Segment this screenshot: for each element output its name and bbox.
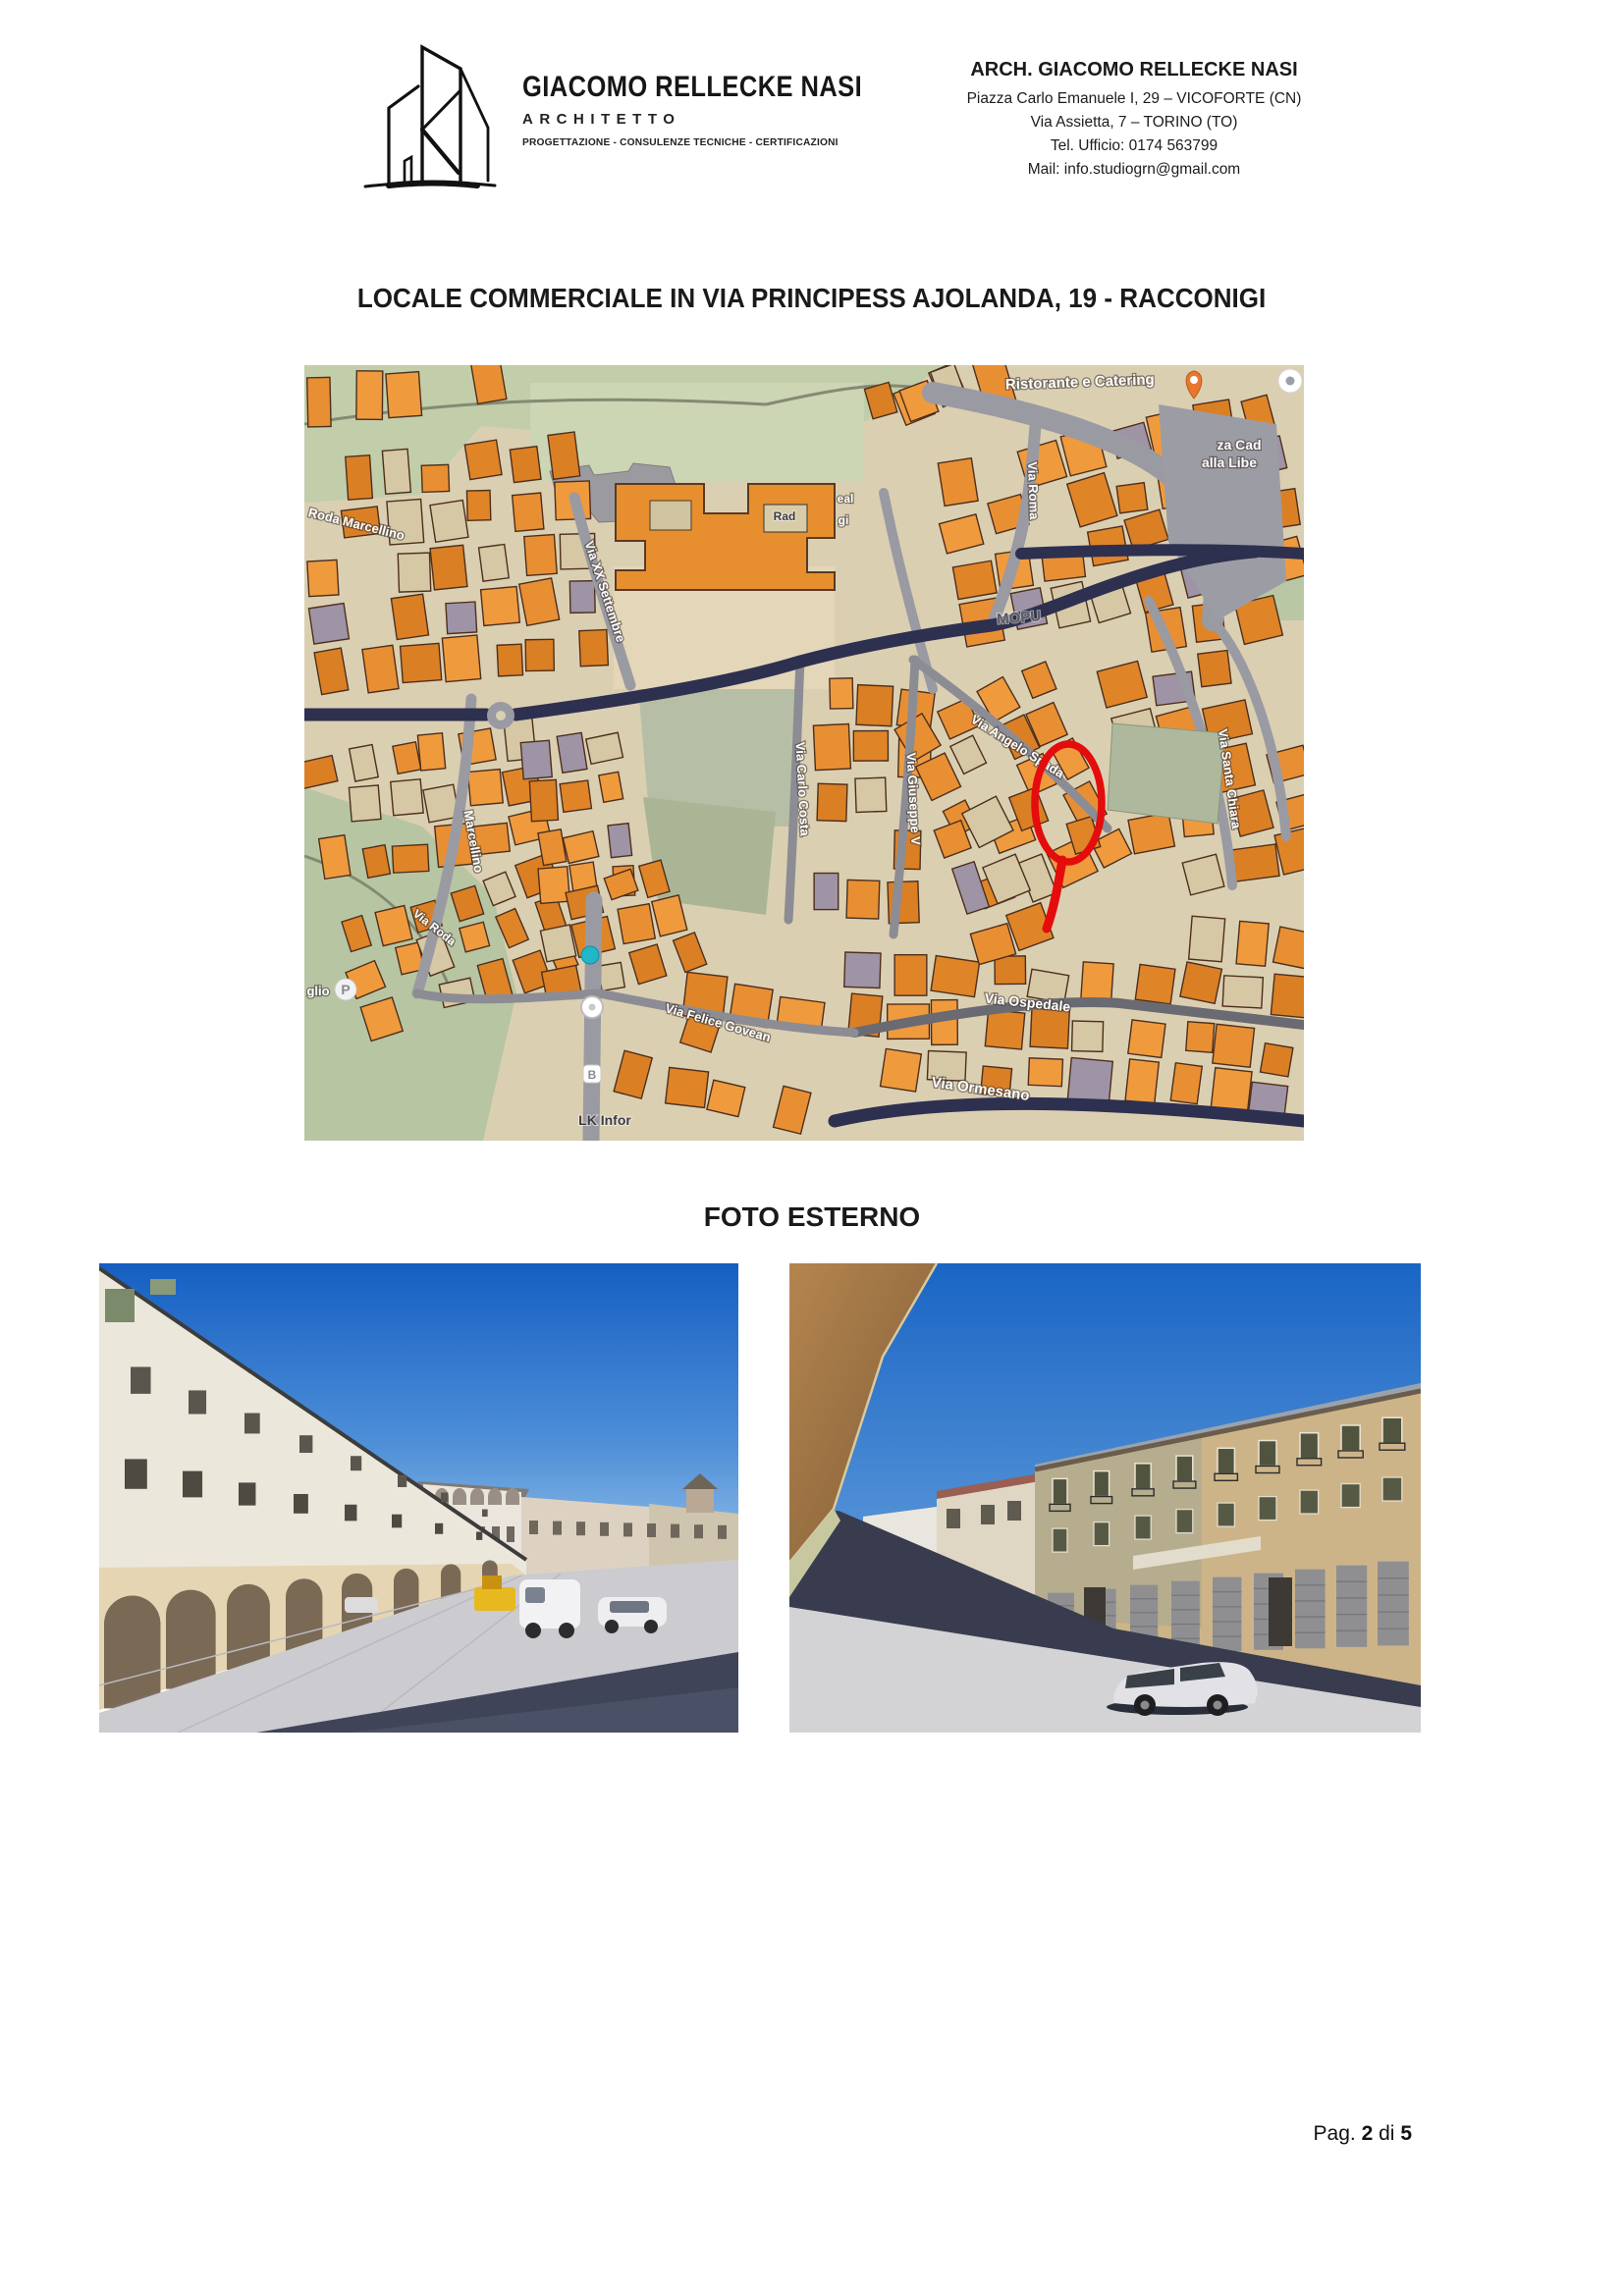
map-building-block: [881, 1048, 922, 1092]
map-building-block: [814, 873, 839, 909]
page-number: Pag. 2 di 5: [1314, 2122, 1412, 2146]
map-building-block: [1128, 813, 1174, 854]
map-roundabout-center: [496, 711, 506, 721]
map-building-block: [846, 880, 880, 919]
map-building-block: [308, 604, 349, 645]
map-building-block: [540, 925, 575, 962]
architect-logo-icon: [361, 43, 499, 192]
map-street-label: Via Roma: [1025, 461, 1042, 520]
document-page: GIACOMO RELLECKE NASI ARCHITETTO PROGETT…: [0, 0, 1624, 2296]
map-building-block: [995, 956, 1026, 985]
map-building-block: [362, 845, 390, 879]
map-building-block: [346, 455, 373, 500]
map-building-block: [1186, 1022, 1215, 1052]
contact-address-2: Via Assietta, 7 – TORINO (TO): [933, 111, 1335, 134]
map-building-block: [569, 581, 595, 614]
map-building-block: [401, 643, 442, 682]
location-map: Ristorante e Cateringza Cadalla LibeRoda…: [304, 365, 1304, 1141]
map-building-block: [1030, 1008, 1069, 1048]
map-building-block: [497, 644, 522, 676]
logo-tagline: PROGETTAZIONE - CONSULENZE TECNICHE - CE…: [522, 136, 839, 148]
parking-icon: P: [335, 979, 356, 1000]
map-building-block: [481, 586, 520, 625]
map-building-block: [538, 867, 569, 904]
map-street-label: za Cad: [1217, 437, 1261, 453]
map-building-block: [417, 733, 445, 771]
map-building-block: [938, 458, 978, 507]
map-marker-teal: [581, 946, 599, 964]
map-building-block: [393, 742, 421, 774]
map-street-label: Rad: [774, 509, 796, 523]
map-building-block: [598, 962, 624, 990]
logo-name: GIACOMO RELLECKE NASI: [522, 71, 862, 104]
map-garden: [1108, 723, 1225, 824]
map-building-block: [1081, 962, 1114, 1003]
section-title-foto-esterno: FOTO ESTERNO: [0, 1201, 1624, 1233]
map-building-block: [579, 629, 609, 666]
map-street-label: glio: [306, 984, 329, 998]
map-building-block: [1028, 1058, 1062, 1087]
map-building-block: [557, 732, 587, 773]
contact-mail-value: info.studiogrn@gmail.com: [1064, 161, 1240, 178]
poi-circle-icon: [1278, 369, 1302, 393]
map-building-block: [513, 493, 544, 531]
map-building-block: [460, 922, 490, 952]
map-building-block: [1072, 1021, 1104, 1051]
map-building-block: [1222, 976, 1263, 1008]
map-building-block: [817, 783, 847, 821]
map-building-block: [382, 449, 410, 494]
transit-stop-icon: [581, 996, 603, 1018]
logo-profession: ARCHITETTO: [522, 111, 935, 128]
map-building-block: [479, 545, 510, 582]
map-street-label: gi: [839, 513, 849, 527]
map-park-area: [643, 797, 776, 915]
map-building-block: [1213, 1024, 1255, 1067]
map-street-label: LK Infor: [578, 1112, 631, 1128]
map-building-block: [356, 371, 383, 420]
map-building-block: [307, 560, 339, 596]
map-building-block: [471, 365, 507, 403]
map-building-block: [830, 678, 853, 709]
map-building-block: [1135, 964, 1175, 1004]
map-building-block: [510, 447, 541, 483]
map-road: [417, 993, 599, 999]
map-building-block: [386, 372, 422, 418]
map-building-block: [1180, 962, 1222, 1003]
map-street-label: MOPU: [997, 608, 1042, 627]
map-street-label: alla Libe: [1202, 454, 1257, 470]
map-building-block: [446, 602, 477, 634]
map-building-block: [894, 955, 927, 996]
page-number-total: 5: [1400, 2122, 1412, 2145]
map-building-block: [608, 824, 632, 858]
map-street-label: eal: [838, 492, 854, 506]
map-building-block: [538, 829, 567, 866]
map-building-block: [430, 545, 467, 590]
map-building-block: [985, 1010, 1024, 1049]
map-building-block: [853, 731, 888, 762]
map-road: [591, 900, 594, 1141]
map-building-block: [1170, 1063, 1202, 1104]
map-building-block: [707, 1080, 745, 1116]
map-building-block: [560, 780, 591, 812]
map-building-block: [391, 779, 423, 816]
map-building-block: [813, 724, 850, 771]
svg-text:P: P: [341, 982, 350, 997]
map-building-block: [1236, 921, 1269, 966]
map-building-block: [844, 952, 881, 988]
map-building-block: [1260, 1043, 1292, 1077]
map-building-block: [519, 578, 560, 625]
map-courtyard: [650, 501, 691, 530]
map-building-block: [307, 377, 331, 427]
map-road: [1021, 550, 1304, 554]
map-building-block: [1189, 916, 1225, 961]
exterior-photo-right-image: [789, 1263, 1421, 1733]
map-building-block: [548, 432, 580, 479]
page-number-of: di: [1379, 2122, 1394, 2145]
page-number-prefix: Pag.: [1314, 2122, 1356, 2145]
map-building-block: [529, 779, 558, 821]
map-building-block: [430, 501, 468, 543]
svg-text:B: B: [588, 1068, 597, 1082]
map-building-block: [524, 534, 557, 575]
map-building-block: [1128, 1020, 1165, 1057]
map-building-block: [464, 440, 502, 479]
map-building-block: [1231, 844, 1279, 881]
map-building-block: [931, 956, 980, 997]
contact-block: ARCH. GIACOMO RELLECKE NASI Piazza Carlo…: [933, 59, 1335, 182]
map-building-block: [1271, 974, 1304, 1018]
map-building-block: [466, 490, 490, 520]
map-building-block: [391, 594, 428, 639]
bus-badge-icon: B: [583, 1065, 601, 1083]
map-building-block: [1125, 1059, 1159, 1103]
page-title: LOCALE COMMERCIALE IN VIA PRINCIPESS AJO…: [0, 283, 1624, 314]
exterior-photo-left-image: [99, 1263, 738, 1733]
map-building-block: [855, 777, 887, 812]
map-building-block: [520, 740, 552, 779]
map-building-block: [1198, 651, 1231, 687]
exterior-photo-right: [789, 1263, 1421, 1733]
map-building-block: [442, 635, 480, 682]
logo-text-block: GIACOMO RELLECKE NASI ARCHITETTO PROGETT…: [522, 71, 935, 150]
map-building-block: [952, 561, 997, 599]
map-building-block: [856, 685, 893, 726]
map-building-block: [618, 904, 655, 944]
exterior-photo-left: [99, 1263, 738, 1733]
contact-mail: Mail: info.studiogrn@gmail.com: [933, 158, 1335, 182]
map-building-block: [362, 645, 399, 693]
map-building-block: [1116, 483, 1148, 513]
contact-phone: Tel. Ufficio: 0174 563799: [933, 134, 1335, 158]
map-building-block: [421, 464, 449, 492]
contact-address-1: Piazza Carlo Emanuele I, 29 – VICOFORTE …: [933, 87, 1335, 111]
contact-name: ARCH. GIACOMO RELLECKE NASI: [933, 59, 1335, 81]
map-building-block: [599, 772, 623, 802]
map-building-block: [349, 785, 381, 822]
map-building-block: [392, 844, 428, 873]
map-building-block: [525, 639, 554, 670]
page-number-current: 2: [1362, 2122, 1374, 2145]
contact-mail-label: Mail:: [1028, 161, 1060, 178]
map-building-block: [666, 1067, 709, 1107]
map-image: Ristorante e Cateringza Cadalla LibeRoda…: [304, 365, 1304, 1141]
map-building-block: [398, 553, 430, 592]
map-building-block: [467, 770, 503, 806]
map-building-block: [319, 835, 351, 880]
